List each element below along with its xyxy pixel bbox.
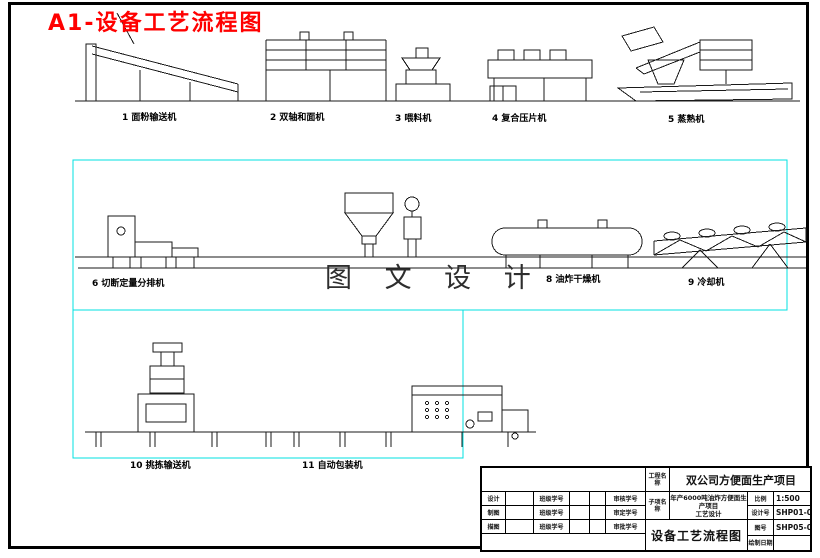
cad-drawing-page: A1-设备工艺流程图 图 文 设 计 1 面粉输送机 2 双轴和面机 3 喂料机…: [0, 0, 820, 558]
drawing-no-value: SHP05-0: [774, 520, 812, 535]
sign-label: 班级学号: [534, 492, 570, 505]
title-block-signature-area: 设计 班级学号 审核学号 制图 班级学号 审定学号 描图 班级学号: [482, 468, 646, 550]
sign-label: 班级学号: [534, 520, 570, 533]
scale-design-column: 比例 1:500 设计号 SHP01-0: [748, 492, 812, 519]
project-name-row: 工程名称 双公司方便面生产项目: [646, 468, 812, 492]
sign-blank: [506, 520, 534, 533]
design-no-label: 设计号: [748, 506, 774, 519]
sign-blank: [590, 520, 606, 533]
scale-value: 1:500: [774, 492, 812, 505]
design-no-row: 设计号 SHP01-0: [748, 506, 812, 519]
sign-blank: [590, 492, 606, 505]
machine-label-10: 10 挑拣输送机: [130, 458, 191, 471]
machine-3-feeder: [396, 48, 450, 101]
sign-blank: [570, 492, 590, 505]
sub-item-line2: 工艺设计: [696, 510, 722, 518]
drawing-title: 设备工艺流程图: [646, 520, 748, 550]
date-row: 绘制日期: [748, 536, 812, 551]
sign-label: 制图: [482, 506, 506, 519]
sign-label: 描图: [482, 520, 506, 533]
machine-9-cooling-conveyor: [654, 223, 806, 268]
sign-blank: [590, 506, 606, 519]
drawing-title-row: 设备工艺流程图 图号 SHP05-0 绘制日期: [646, 520, 812, 550]
drawing-no-column: 图号 SHP05-0 绘制日期: [748, 520, 812, 550]
title-block: 设计 班级学号 审核学号 制图 班级学号 审定学号 描图 班级学号: [480, 466, 812, 552]
cyan-frame-bottom: [73, 310, 463, 458]
date-value: [774, 536, 812, 551]
machine-1-flour-conveyor: [86, 44, 238, 101]
project-name-label: 工程名称: [646, 468, 670, 491]
drawing-no-row: 图号 SHP05-0: [748, 520, 812, 536]
machine-11-packing-machine: [283, 386, 536, 447]
machine-7-hopper: [345, 193, 421, 257]
machine-4-calender: [488, 50, 592, 101]
page-title: A1-设备工艺流程图: [48, 5, 263, 37]
title-block-empty-top: [482, 468, 645, 492]
sign-label: 设计: [482, 492, 506, 505]
sub-item-line1: 年产6000吨油炸方便面生产项目: [670, 494, 747, 510]
date-label: 绘制日期: [748, 536, 774, 551]
project-name-value: 双公司方便面生产项目: [670, 468, 812, 491]
sub-item-row: 子项名称 年产6000吨油炸方便面生产项目 工艺设计 比例 1:500 设计号 …: [646, 492, 812, 520]
sign-row: 设计 班级学号 审核学号: [482, 492, 645, 506]
sub-item-label: 子项名称: [646, 492, 670, 519]
sign-blank: [506, 506, 534, 519]
machine-5-steamer: [618, 27, 792, 101]
sign-blank: [570, 506, 590, 519]
machine-10-pick-conveyor: [85, 343, 283, 447]
sign-row: 制图 班级学号 审定学号: [482, 506, 645, 520]
scale-label: 比例: [748, 492, 774, 505]
sign-label: 审核学号: [606, 492, 645, 505]
sign-label: 班级学号: [534, 506, 570, 519]
sign-label: 审批学号: [606, 520, 645, 533]
scale-row: 比例 1:500: [748, 492, 812, 506]
machine-label-3: 3 喂料机: [395, 111, 431, 124]
watermark-text: 图 文 设 计: [325, 256, 543, 295]
machine-6-cutting-machine: [108, 216, 198, 268]
machine-label-8: 8 油炸干燥机: [546, 272, 600, 285]
machine-label-9: 9 冷却机: [688, 275, 724, 288]
title-block-info-area: 工程名称 双公司方便面生产项目 子项名称 年产6000吨油炸方便面生产项目 工艺…: [646, 468, 812, 550]
title-block-empty-bottom: [482, 534, 645, 550]
machine-2-dough-mixer: [266, 32, 386, 101]
machine-label-6: 6 切断定量分排机: [92, 276, 164, 289]
sub-item-value: 年产6000吨油炸方便面生产项目 工艺设计: [670, 492, 748, 519]
machine-label-4: 4 复合压片机: [492, 111, 546, 124]
sign-blank: [506, 492, 534, 505]
machine-label-11: 11 自动包装机: [302, 458, 363, 471]
machine-label-1: 1 面粉输送机: [122, 110, 176, 123]
sign-row: 描图 班级学号 审批学号: [482, 520, 645, 534]
machine-label-5: 5 蒸熟机: [668, 112, 704, 125]
design-no-value: SHP01-0: [774, 506, 812, 519]
drawing-no-label: 图号: [748, 520, 774, 535]
sign-blank: [570, 520, 590, 533]
sign-label: 审定学号: [606, 506, 645, 519]
machine-label-2: 2 双轴和面机: [270, 110, 324, 123]
